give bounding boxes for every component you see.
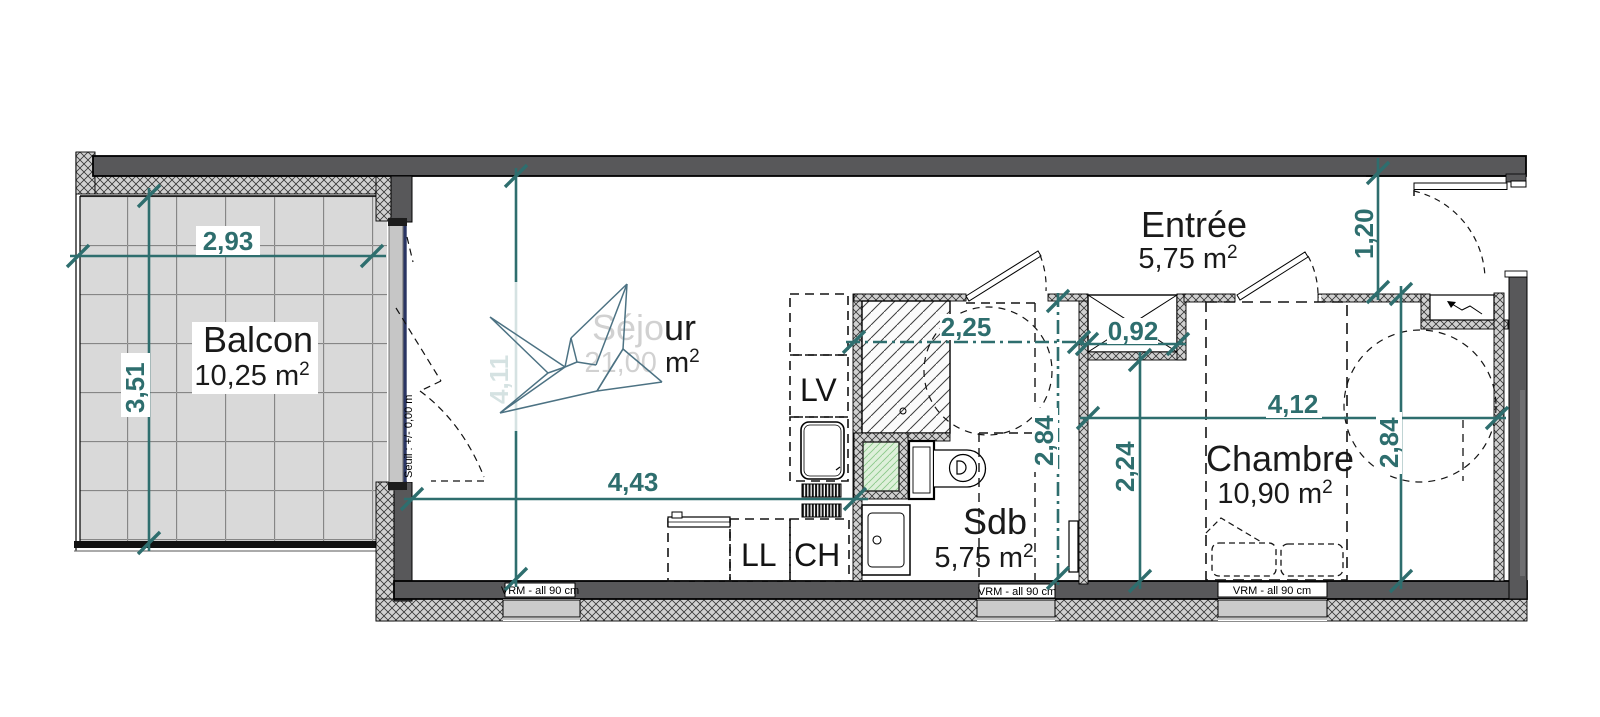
- svg-text:VRM - all 90 cm: VRM - all 90 cm: [501, 585, 579, 597]
- svg-text:5,75 m2: 5,75 m2: [1138, 242, 1237, 275]
- svg-text:2,25: 2,25: [941, 312, 992, 342]
- svg-text:1,20: 1,20: [1349, 208, 1379, 259]
- svg-text:3,51: 3,51: [120, 362, 150, 413]
- svg-text:0,92: 0,92: [1108, 316, 1159, 346]
- svg-text:Balcon: Balcon: [203, 319, 313, 360]
- svg-text:2,84: 2,84: [1029, 415, 1059, 466]
- svg-text:4,12: 4,12: [1268, 389, 1319, 419]
- svg-text:10,25 m2: 10,25 m2: [194, 359, 309, 392]
- svg-text:Sdb: Sdb: [963, 501, 1027, 542]
- svg-text:4,43: 4,43: [608, 467, 659, 497]
- svg-text:LL: LL: [741, 537, 777, 573]
- svg-text:VRM - all 90 cm: VRM - all 90 cm: [1233, 585, 1311, 597]
- svg-text:Entrée: Entrée: [1141, 204, 1247, 245]
- svg-text:CH: CH: [794, 537, 840, 573]
- svg-text:VRM - all 90 cm: VRM - all 90 cm: [978, 586, 1056, 598]
- svg-text:2,84: 2,84: [1374, 417, 1404, 468]
- svg-text:Seuil : +/- 0,00 m: Seuil : +/- 0,00 m: [403, 395, 415, 478]
- svg-text:10,90 m2: 10,90 m2: [1217, 477, 1332, 510]
- svg-text:LV: LV: [800, 372, 837, 408]
- svg-text:Chambre: Chambre: [1206, 438, 1354, 479]
- svg-text:5,75 m2: 5,75 m2: [934, 541, 1033, 574]
- svg-text:2,93: 2,93: [203, 226, 254, 256]
- svg-text:2,24: 2,24: [1110, 441, 1140, 492]
